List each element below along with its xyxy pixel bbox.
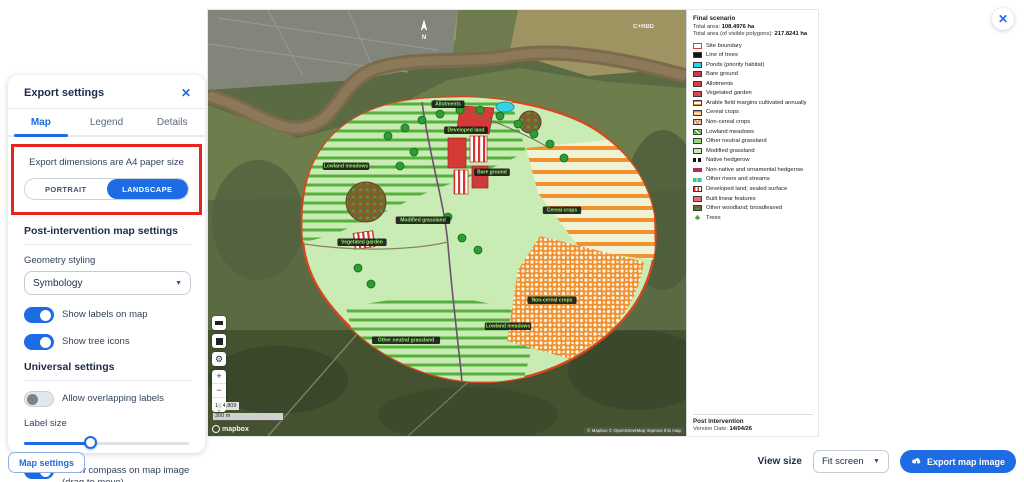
orange-grid-swatch <box>693 119 702 125</box>
site-boundary-swatch <box>693 43 702 49</box>
legend-item: Other neutral grassland <box>693 138 813 144</box>
scale-ratio: 1 : 4,809 <box>212 402 239 410</box>
show-tree-icons-toggle[interactable] <box>24 334 54 350</box>
habitat-label-text: Lowland meadows <box>324 164 369 170</box>
legend-item-label: Vegetated garden <box>706 90 752 96</box>
export-dialog-page: Export settings ✕ Map Legend Details Exp… <box>0 0 1024 482</box>
woodland-swatch <box>693 205 702 211</box>
view-size-select[interactable]: Fit screen ▼ <box>813 450 889 473</box>
red-swatch <box>693 81 702 87</box>
geometry-styling-select[interactable]: Symbology ▼ <box>24 271 191 295</box>
legend-item: Allotments <box>693 81 813 87</box>
legend-item: Arable field margins cultivated annually <box>693 100 813 106</box>
landscape-button[interactable]: LANDSCAPE <box>107 179 189 199</box>
legend-item: Cereal crops <box>693 109 813 115</box>
map-controls: ⚙ + − <box>212 316 226 412</box>
legend-item-label: Non-native and ornamental hedgerow <box>706 167 803 173</box>
map-export-preview: Modified grasslandCereal cropsNon-cereal… <box>208 10 818 436</box>
pond <box>496 102 514 112</box>
gear-icon: ⚙ <box>215 353 223 366</box>
mapbox-wordmark: mapbox <box>222 426 249 433</box>
legend-item: Other rivers and streams <box>693 176 813 182</box>
svg-text:N: N <box>422 35 426 41</box>
show-tree-icons-row: Show tree icons <box>24 334 191 350</box>
show-tree-icons-label: Show tree icons <box>62 334 130 348</box>
dash-water-swatch <box>693 178 702 182</box>
legend-item: Bare ground <box>693 71 813 77</box>
map-watermark: C+RBD <box>633 24 655 30</box>
geometry-styling-value: Symbology <box>33 278 82 289</box>
map-canvas[interactable]: Modified grasslandCereal cropsNon-cereal… <box>208 10 686 436</box>
legend-item-label: Other neutral grassland <box>706 138 767 144</box>
legend-item: Other woodland; broadleaved <box>693 205 813 211</box>
orange-stripes-swatch <box>693 110 702 116</box>
overlap-labels-label: Allow overlapping labels <box>62 391 164 405</box>
export-settings-header: Export settings ✕ <box>8 87 205 109</box>
legend-item: Modified grassland <box>693 148 813 154</box>
dash-black-swatch <box>693 158 702 162</box>
universal-section-title: Universal settings <box>24 361 191 381</box>
toggle-knob <box>27 394 38 405</box>
show-labels-row: Show labels on map <box>24 307 191 323</box>
legend-item: Non-native and ornamental hedgerow <box>693 167 813 173</box>
habitat-label-text: Lowland meadows <box>486 324 531 330</box>
legend-item: Non-cereal crops <box>693 119 813 125</box>
export-map-image-button[interactable]: Export map image <box>900 450 1016 473</box>
view-size-label: View size <box>758 456 802 467</box>
tab-legend[interactable]: Legend <box>74 109 140 135</box>
export-settings-title: Export settings <box>24 87 104 99</box>
toggle-knob <box>40 310 51 321</box>
legend-item: Lowland meadows <box>693 129 813 135</box>
pink-swatch <box>693 196 702 202</box>
red-stripes-swatch <box>693 186 702 192</box>
label-size-thumb[interactable] <box>84 436 97 449</box>
green-pale-swatch <box>693 148 702 154</box>
toggle-knob <box>40 337 51 348</box>
legend-footer: Post Intervention Version Date: 14/04/26 <box>693 414 813 432</box>
slider-fill <box>24 442 90 445</box>
legend-item-label: Cereal crops <box>706 109 739 115</box>
map-legend-panel: Final scenario Total area: 108.4976 ha T… <box>686 10 818 436</box>
legend-item-label: Other woodland; broadleaved <box>706 205 782 211</box>
legend-version-date: Version Date: 14/04/26 <box>693 426 813 432</box>
legend-item-label: Allotments <box>706 81 733 87</box>
legend-item-label: Native hedgerow <box>706 157 750 163</box>
dimensions-note: Export dimensions are A4 paper size <box>24 157 189 168</box>
habitat-label-text: Developed land <box>448 128 485 134</box>
legend-item: Vegetated garden <box>693 90 813 96</box>
legend-item: Built linear features <box>693 196 813 202</box>
legend-item: Developed land; sealed surface <box>693 186 813 192</box>
legend-item: Line of trees <box>693 52 813 58</box>
close-dialog-button[interactable]: ✕ <box>992 8 1014 30</box>
close-icon: ✕ <box>998 12 1008 26</box>
export-button-label: Export map image <box>927 457 1005 467</box>
label-size-slider[interactable] <box>24 436 189 450</box>
legend-item-label: Non-cereal crops <box>706 119 750 125</box>
black-swatch <box>693 52 702 58</box>
overlap-labels-toggle[interactable] <box>24 391 54 407</box>
habitat-label-text: Other neutral grassland <box>378 338 434 344</box>
crimson-swatch <box>693 71 702 77</box>
show-labels-toggle[interactable] <box>24 307 54 323</box>
habitat-label-text: Cereal crops <box>547 208 578 214</box>
legend-title: Final scenario <box>693 15 813 22</box>
legend-total-area: Total area: 108.4976 ha <box>693 24 813 30</box>
dimensions-annotation-box: Export dimensions are A4 paper size PORT… <box>11 144 202 215</box>
overlap-labels-row: Allow overlapping labels <box>24 391 191 407</box>
legend-item-label: Site boundary <box>706 43 742 49</box>
green-mid-swatch <box>693 138 702 144</box>
habitat-label-text: Allotments <box>435 102 461 108</box>
legend-item-label: Arable field margins cultivated annually <box>706 100 807 106</box>
mapbox-logo[interactable]: mapbox <box>212 425 249 433</box>
dash-red-swatch <box>693 168 702 172</box>
mapbox-icon <box>212 425 220 433</box>
map-settings-button[interactable]: Map settings <box>8 452 85 473</box>
legend-item-label: Built linear features <box>706 196 756 202</box>
basemap-icon <box>216 338 223 345</box>
legend-item-label: Other rivers and streams <box>706 176 770 182</box>
red2-swatch <box>693 91 702 97</box>
cloud-download-icon <box>911 457 922 466</box>
legend-item-label: Modified grassland <box>706 148 755 154</box>
cyan-swatch <box>693 62 702 68</box>
legend-item: Ponds (priority habitat) <box>693 62 813 68</box>
label-size-label: Label size <box>24 418 191 429</box>
map-attribution[interactable]: © Mapbox © OpenStreetMap Improve this ma… <box>584 427 684 434</box>
tab-map[interactable]: Map <box>8 109 74 135</box>
legend-visible-area: Total area (of visible polygons): 217.82… <box>693 31 813 37</box>
habitat-label-text: Modified grassland <box>400 218 446 224</box>
zoom-in-button[interactable]: + <box>212 370 226 384</box>
tab-details[interactable]: Details <box>139 109 205 135</box>
legend-item-label: Lowland meadows <box>706 129 754 135</box>
green-hatch-swatch <box>693 129 702 135</box>
legend-item-label: Developed land; sealed surface <box>706 186 787 192</box>
export-settings-panel: Export settings ✕ Map Legend Details Exp… <box>8 75 205 453</box>
footer-actions: View size Fit screen ▼ Export map image <box>758 450 1016 473</box>
habitat-label-text: Non-cereal crops <box>532 298 573 304</box>
habitat-label-text: Vegetated garden <box>341 240 383 246</box>
tree-icon-swatch: ♣ <box>693 215 702 221</box>
chevron-down-icon: ▼ <box>873 458 880 465</box>
woodland-patch <box>346 182 386 222</box>
scale-bar: 300 m <box>212 413 284 421</box>
legend-item-label: Line of trees <box>706 52 738 58</box>
legend-item: Site boundary <box>693 43 813 49</box>
chevron-down-icon: ▼ <box>175 280 182 287</box>
export-tabs: Map Legend Details <box>8 109 205 137</box>
legend-list: Site boundaryLine of treesPonds (priorit… <box>693 43 813 222</box>
collapse-icon <box>215 321 223 325</box>
orientation-toggle-group: PORTRAIT LANDSCAPE <box>24 178 189 200</box>
legend-item: Native hedgerow <box>693 157 813 163</box>
geometry-styling-label: Geometry styling <box>24 255 191 266</box>
habitat-label-text: Bare ground <box>477 170 507 176</box>
show-labels-label: Show labels on map <box>62 307 148 321</box>
legend-footer-title: Post Intervention <box>693 418 813 425</box>
collapse-panel-button[interactable] <box>212 316 226 330</box>
scale-bar-label: 300 m <box>215 413 230 419</box>
legend-item-label: Ponds (priority habitat) <box>706 62 764 68</box>
panel-close-icon[interactable]: ✕ <box>181 87 191 99</box>
portrait-button[interactable]: PORTRAIT <box>25 179 107 199</box>
view-size-value: Fit screen <box>822 456 864 467</box>
woodland-patch-2 <box>519 111 541 133</box>
zoom-out-button[interactable]: − <box>212 384 226 398</box>
map-options-button[interactable]: ⚙ <box>212 352 226 366</box>
legend-item-label: Bare ground <box>706 71 738 77</box>
basemap-button[interactable] <box>212 334 226 348</box>
orange-lattice-swatch <box>693 100 702 106</box>
post-intervention-section-title: Post-intervention map settings <box>24 225 191 245</box>
map-svg: Modified grasslandCereal cropsNon-cereal… <box>208 10 686 436</box>
